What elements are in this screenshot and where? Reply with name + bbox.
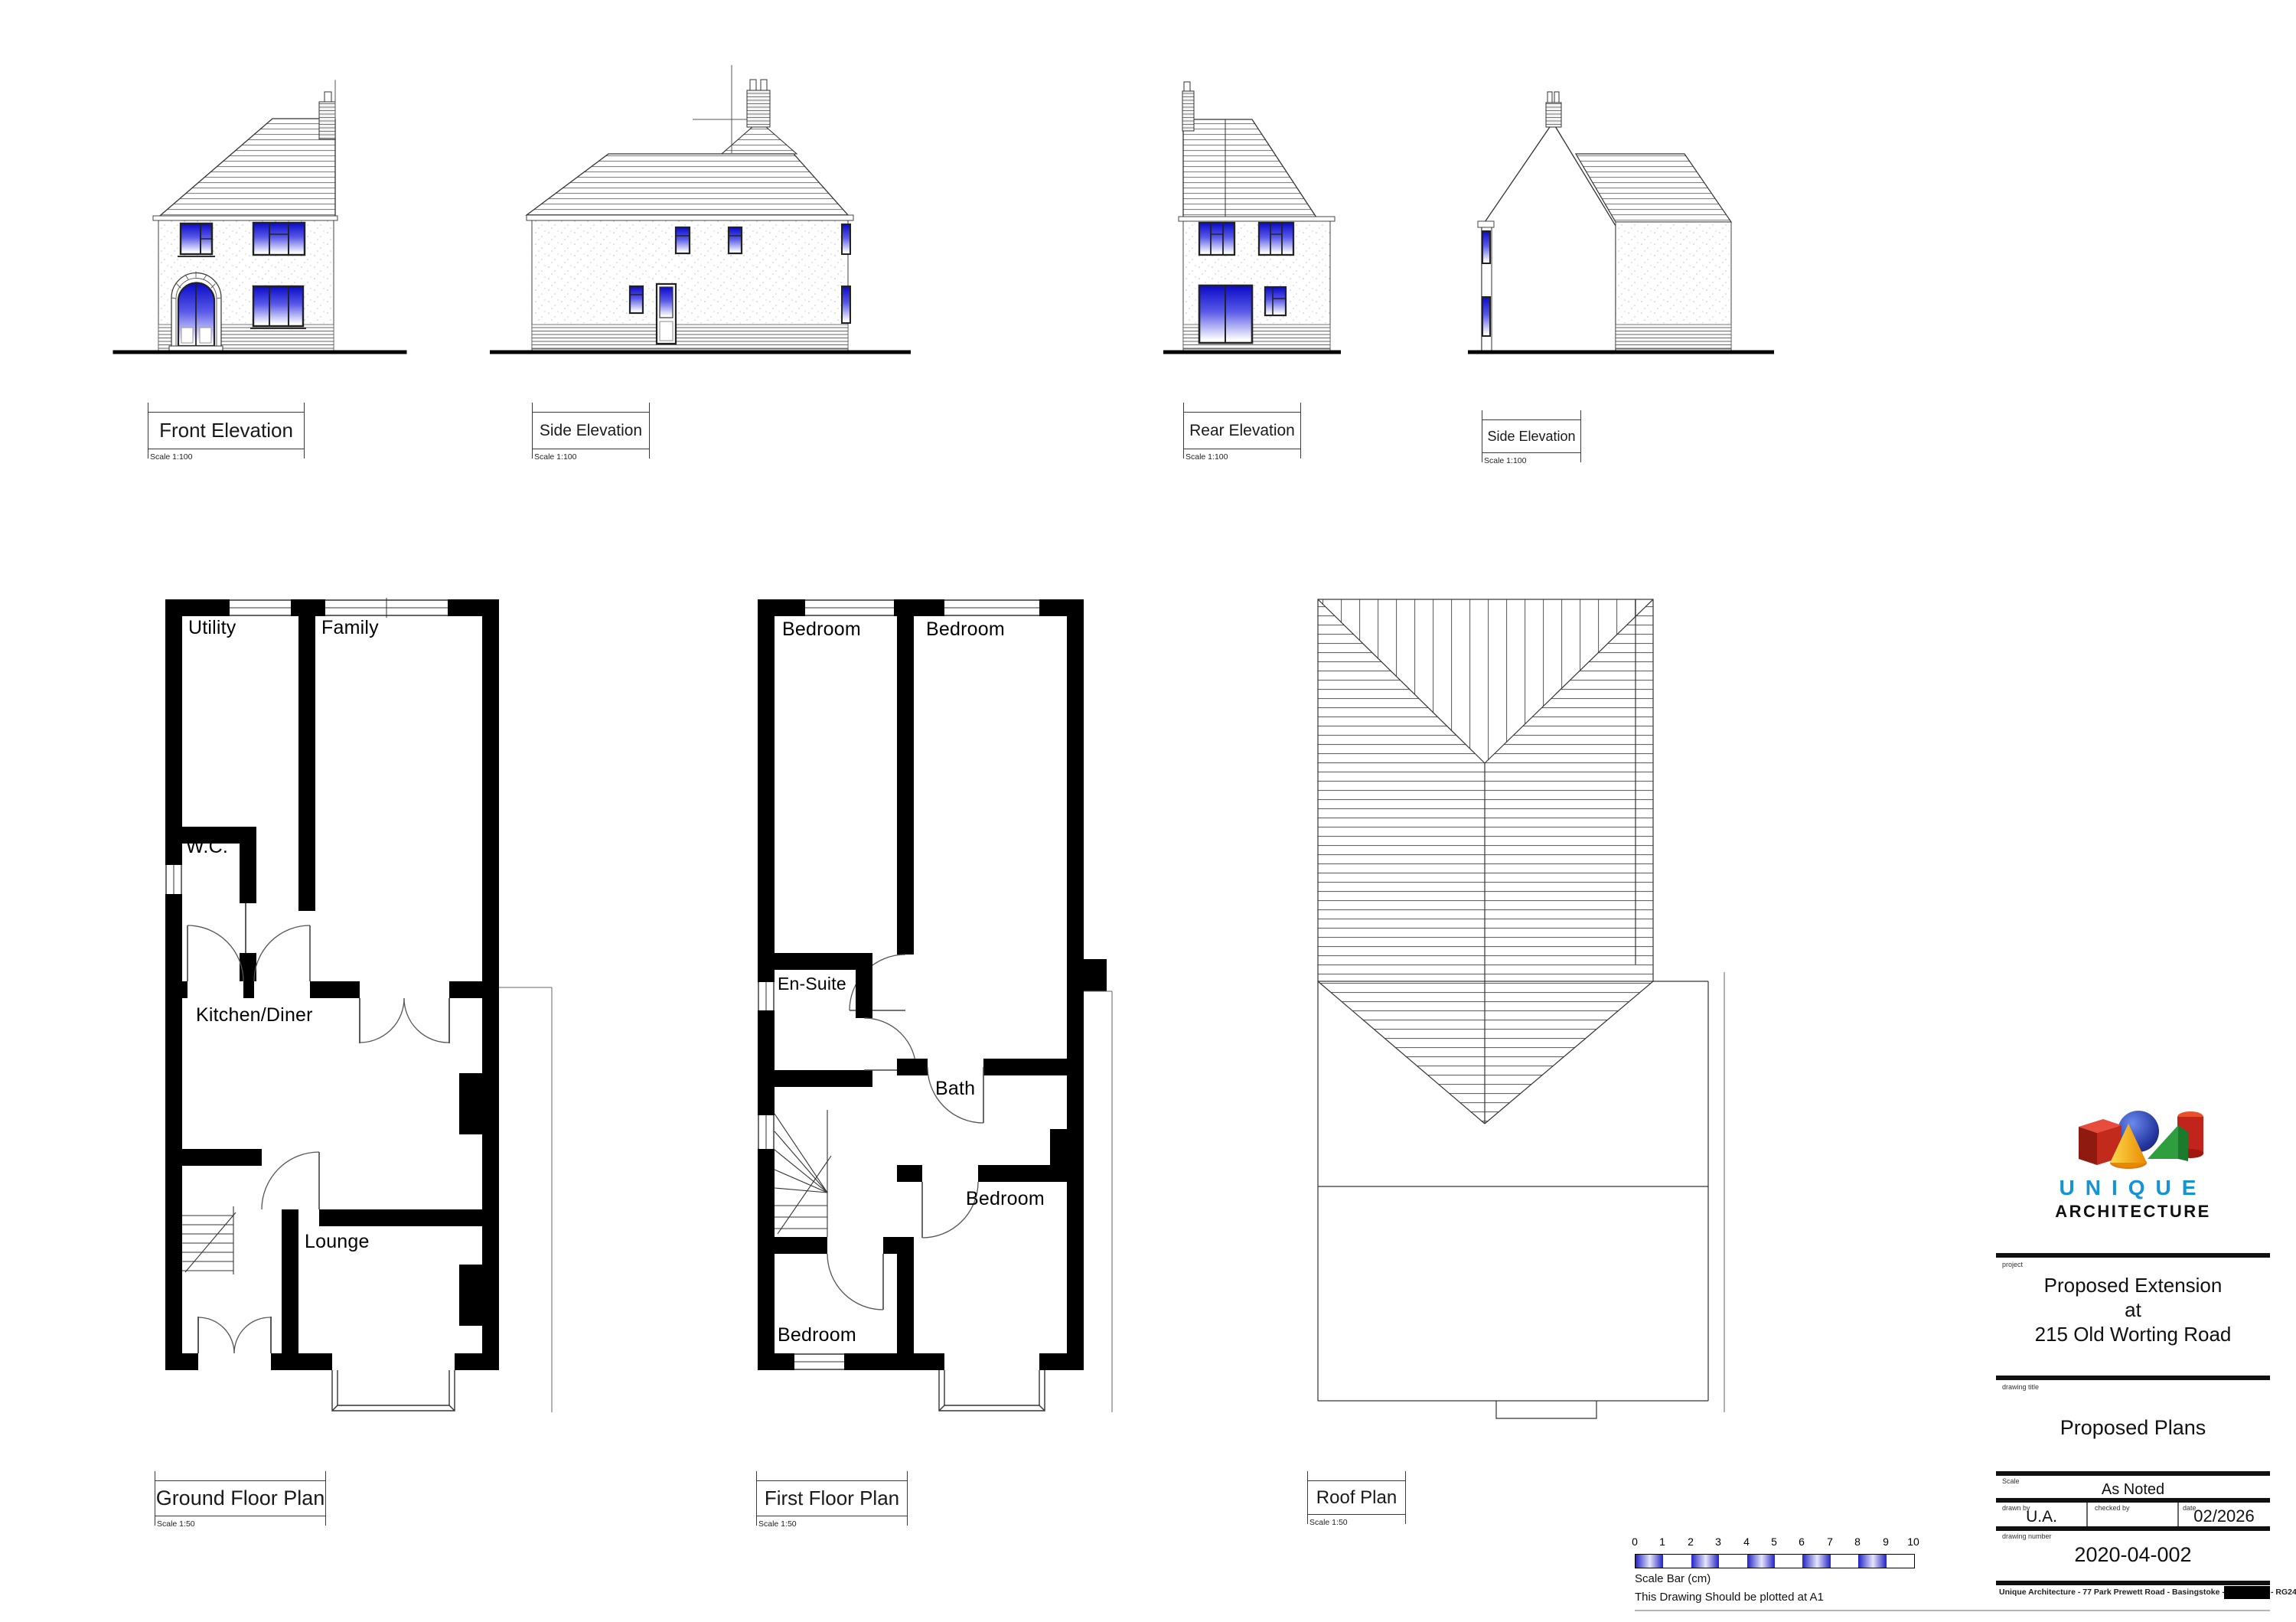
plan-first-drawing — [756, 598, 1112, 1412]
project-title-line2: at — [1996, 1298, 2270, 1322]
room-label-bedroom-1: Bedroom — [782, 618, 861, 641]
date-value: 02/2026 — [2178, 1506, 2270, 1526]
first-stairs — [775, 1110, 831, 1237]
scale-bar-tick: 8 — [1854, 1536, 1861, 1548]
elevation-side-title-text: Side Elevation — [540, 422, 642, 440]
elevation-front-title-text: Front Elevation — [159, 419, 293, 442]
scale-bar-segment — [1747, 1555, 1775, 1568]
room-label-family: Family — [321, 617, 379, 639]
scale-bar-caption: Scale Bar (cm) — [1635, 1572, 1711, 1585]
drawing-number-field-label: drawing number — [2002, 1532, 2052, 1540]
plan-first-title: First Floor Plan — [756, 1480, 908, 1516]
scale-bar-tick: 5 — [1771, 1536, 1777, 1548]
room-label-utility: Utility — [188, 617, 236, 639]
elevation-rear-drawing — [1163, 82, 1341, 352]
room-label-bedroom-3: Bedroom — [966, 1188, 1045, 1210]
title-block-rule — [1996, 1526, 2270, 1531]
scale-bar-segment — [1887, 1555, 1914, 1568]
room-label-lounge: Lounge — [305, 1231, 370, 1253]
checked-by-field-label: checked by — [2095, 1504, 2130, 1512]
plan-roof-scale: Scale 1:50 — [1309, 1518, 1348, 1527]
drawing-title-field-label: drawing title — [2002, 1383, 2039, 1391]
plot-note: This Drawing Should be plotted at A1 — [1635, 1591, 1824, 1604]
scale-bar-tick: 9 — [1883, 1536, 1889, 1548]
plan-roof-drawing — [1318, 599, 1724, 1418]
room-label-wc: W.C. — [186, 836, 228, 858]
scale-bar-segment — [1802, 1555, 1830, 1568]
scale-bar-tick: 10 — [1907, 1536, 1919, 1548]
front-door — [169, 272, 223, 351]
elevation-side-title: Side Elevation — [532, 412, 650, 449]
plan-window — [794, 1352, 844, 1372]
elevation-side2-title: Side Elevation — [1482, 419, 1581, 453]
room-label-kitchen-diner: Kitchen/Diner — [196, 1004, 313, 1026]
ground-stairs — [182, 1206, 236, 1274]
scale-bar-tick: 2 — [1688, 1536, 1694, 1548]
elevation-side2-scale: Scale 1:100 — [1484, 456, 1526, 465]
plan-first-title-text: First Floor Plan — [765, 1487, 899, 1510]
project-title-line1: Proposed Extension — [1996, 1274, 2270, 1297]
plan-ground-title-text: Ground Floor Plan — [156, 1487, 325, 1510]
elevation-rear-scale: Scale 1:100 — [1186, 452, 1228, 462]
title-block-rule — [1996, 1471, 2270, 1476]
title-block-rule — [1996, 1253, 2270, 1258]
elevation-side-scale: Scale 1:100 — [534, 452, 576, 462]
scale-bar-tick: 6 — [1799, 1536, 1805, 1548]
footer-redaction-block — [2224, 1586, 2270, 1599]
elevation-side-drawing — [490, 65, 911, 352]
scale-bar-segment — [1858, 1555, 1886, 1568]
project-field-label: project — [2002, 1261, 2023, 1268]
plan-roof-title: Roof Plan — [1307, 1480, 1406, 1515]
elevation-front-scale: Scale 1:100 — [150, 452, 192, 462]
elevation-side2-drawing — [1468, 92, 1774, 352]
scale-bar-strip — [1635, 1554, 1915, 1568]
room-label-bedroom-2: Bedroom — [926, 618, 1005, 641]
title-block-rule — [1996, 1581, 2270, 1585]
logo-shapes-icon — [2079, 1111, 2203, 1169]
plan-first-scale: Scale 1:50 — [758, 1519, 797, 1529]
plan-window — [164, 865, 184, 894]
scale-bar-tick: 7 — [1827, 1536, 1833, 1548]
drawing-number-value: 2020-04-002 — [1996, 1543, 2270, 1567]
scale-bar-segment — [1663, 1555, 1691, 1568]
scale-bar-segment — [1775, 1555, 1802, 1568]
title-block-rule — [1996, 1498, 2270, 1503]
drawing-sheet: Front Elevation Scale 1:100 Side Elevati… — [0, 0, 2296, 1622]
plan-window — [230, 598, 448, 618]
title-block-rule — [1996, 1376, 2270, 1380]
elevation-rear-title-text: Rear Elevation — [1189, 422, 1295, 440]
first-bay-window — [939, 1370, 1045, 1411]
elevation-side2-title-text: Side Elevation — [1487, 429, 1575, 445]
logo-architecture-text: ARCHITECTURE — [1996, 1202, 2270, 1222]
project-title-line3: 215 Old Worting Road — [1996, 1323, 2270, 1346]
scale-bar-segment — [1691, 1555, 1719, 1568]
room-label-bedroom-4: Bedroom — [778, 1324, 856, 1346]
plan-ground-title: Ground Floor Plan — [155, 1480, 326, 1516]
plan-ground-scale: Scale 1:50 — [157, 1519, 195, 1529]
elevation-rear-title: Rear Elevation — [1183, 412, 1301, 449]
scale-bar-tick: 4 — [1743, 1536, 1750, 1548]
scale-bar-tick: 1 — [1659, 1536, 1665, 1548]
scale-value: As Noted — [1996, 1481, 2270, 1499]
ground-bay-window — [332, 1370, 455, 1411]
scale-bar-segment — [1719, 1555, 1746, 1568]
logo-unique-text: UNIQUE — [1996, 1176, 2270, 1200]
scale-bar-tick: 0 — [1632, 1536, 1638, 1548]
elevation-front-drawing — [115, 80, 405, 352]
drawn-by-value: U.A. — [1996, 1508, 2087, 1526]
plan-roof-title-text: Roof Plan — [1316, 1487, 1397, 1509]
scale-bar-segment — [1831, 1555, 1858, 1568]
scale-bar-tick: 3 — [1715, 1536, 1721, 1548]
drawing-geometry — [0, 0, 2296, 1622]
elevation-front-title: Front Elevation — [148, 412, 305, 449]
scale-bar-segment — [1636, 1555, 1663, 1568]
room-label-ensuite: En-Suite — [778, 974, 846, 994]
drawing-title-value: Proposed Plans — [1996, 1416, 2270, 1440]
room-label-bath: Bath — [935, 1078, 975, 1100]
side-door — [657, 284, 676, 344]
